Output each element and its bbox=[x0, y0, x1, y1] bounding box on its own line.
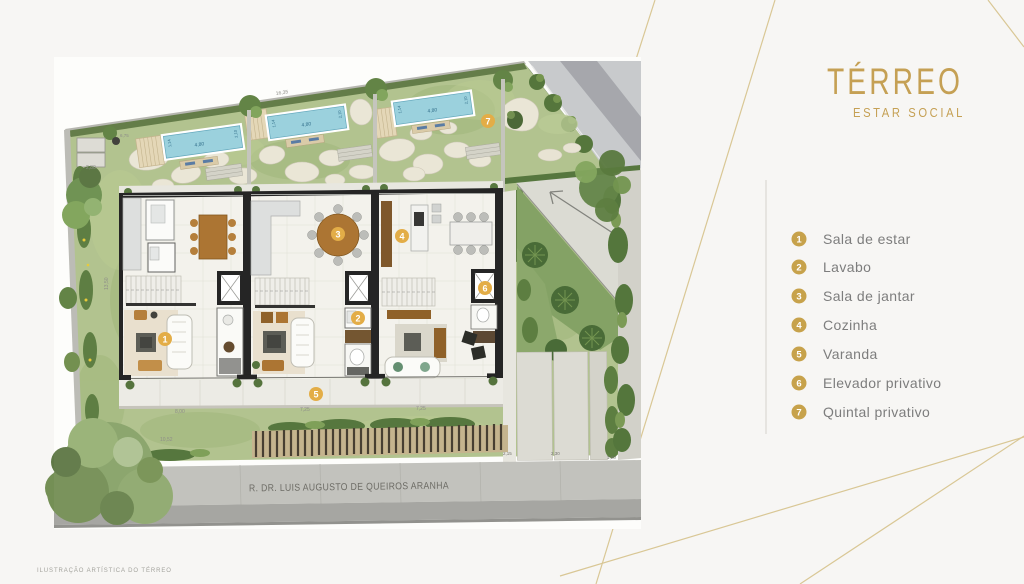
svg-text:Sala de jantar: Sala de jantar bbox=[823, 288, 915, 304]
svg-text:Quintal privativo: Quintal privativo bbox=[823, 404, 930, 420]
svg-text:ESTAR SOCIAL: ESTAR SOCIAL bbox=[853, 105, 965, 120]
svg-text:TÉRREO: TÉRREO bbox=[827, 61, 963, 102]
svg-text:Varanda: Varanda bbox=[823, 346, 878, 362]
svg-text:5: 5 bbox=[796, 350, 802, 361]
svg-text:Sala de estar: Sala de estar bbox=[823, 231, 911, 247]
svg-text:7: 7 bbox=[796, 408, 801, 419]
svg-text:ILUSTRAÇÃO ARTÍSTICA DO TÉRREO: ILUSTRAÇÃO ARTÍSTICA DO TÉRREO bbox=[37, 567, 172, 574]
svg-text:1: 1 bbox=[796, 235, 802, 246]
svg-text:2: 2 bbox=[796, 263, 801, 274]
svg-text:3: 3 bbox=[796, 292, 801, 303]
svg-text:Lavabo: Lavabo bbox=[823, 259, 871, 275]
svg-text:Cozinha: Cozinha bbox=[823, 317, 877, 333]
svg-text:6: 6 bbox=[796, 379, 801, 390]
svg-text:Elevador privativo: Elevador privativo bbox=[823, 375, 941, 391]
svg-text:4: 4 bbox=[796, 321, 802, 332]
